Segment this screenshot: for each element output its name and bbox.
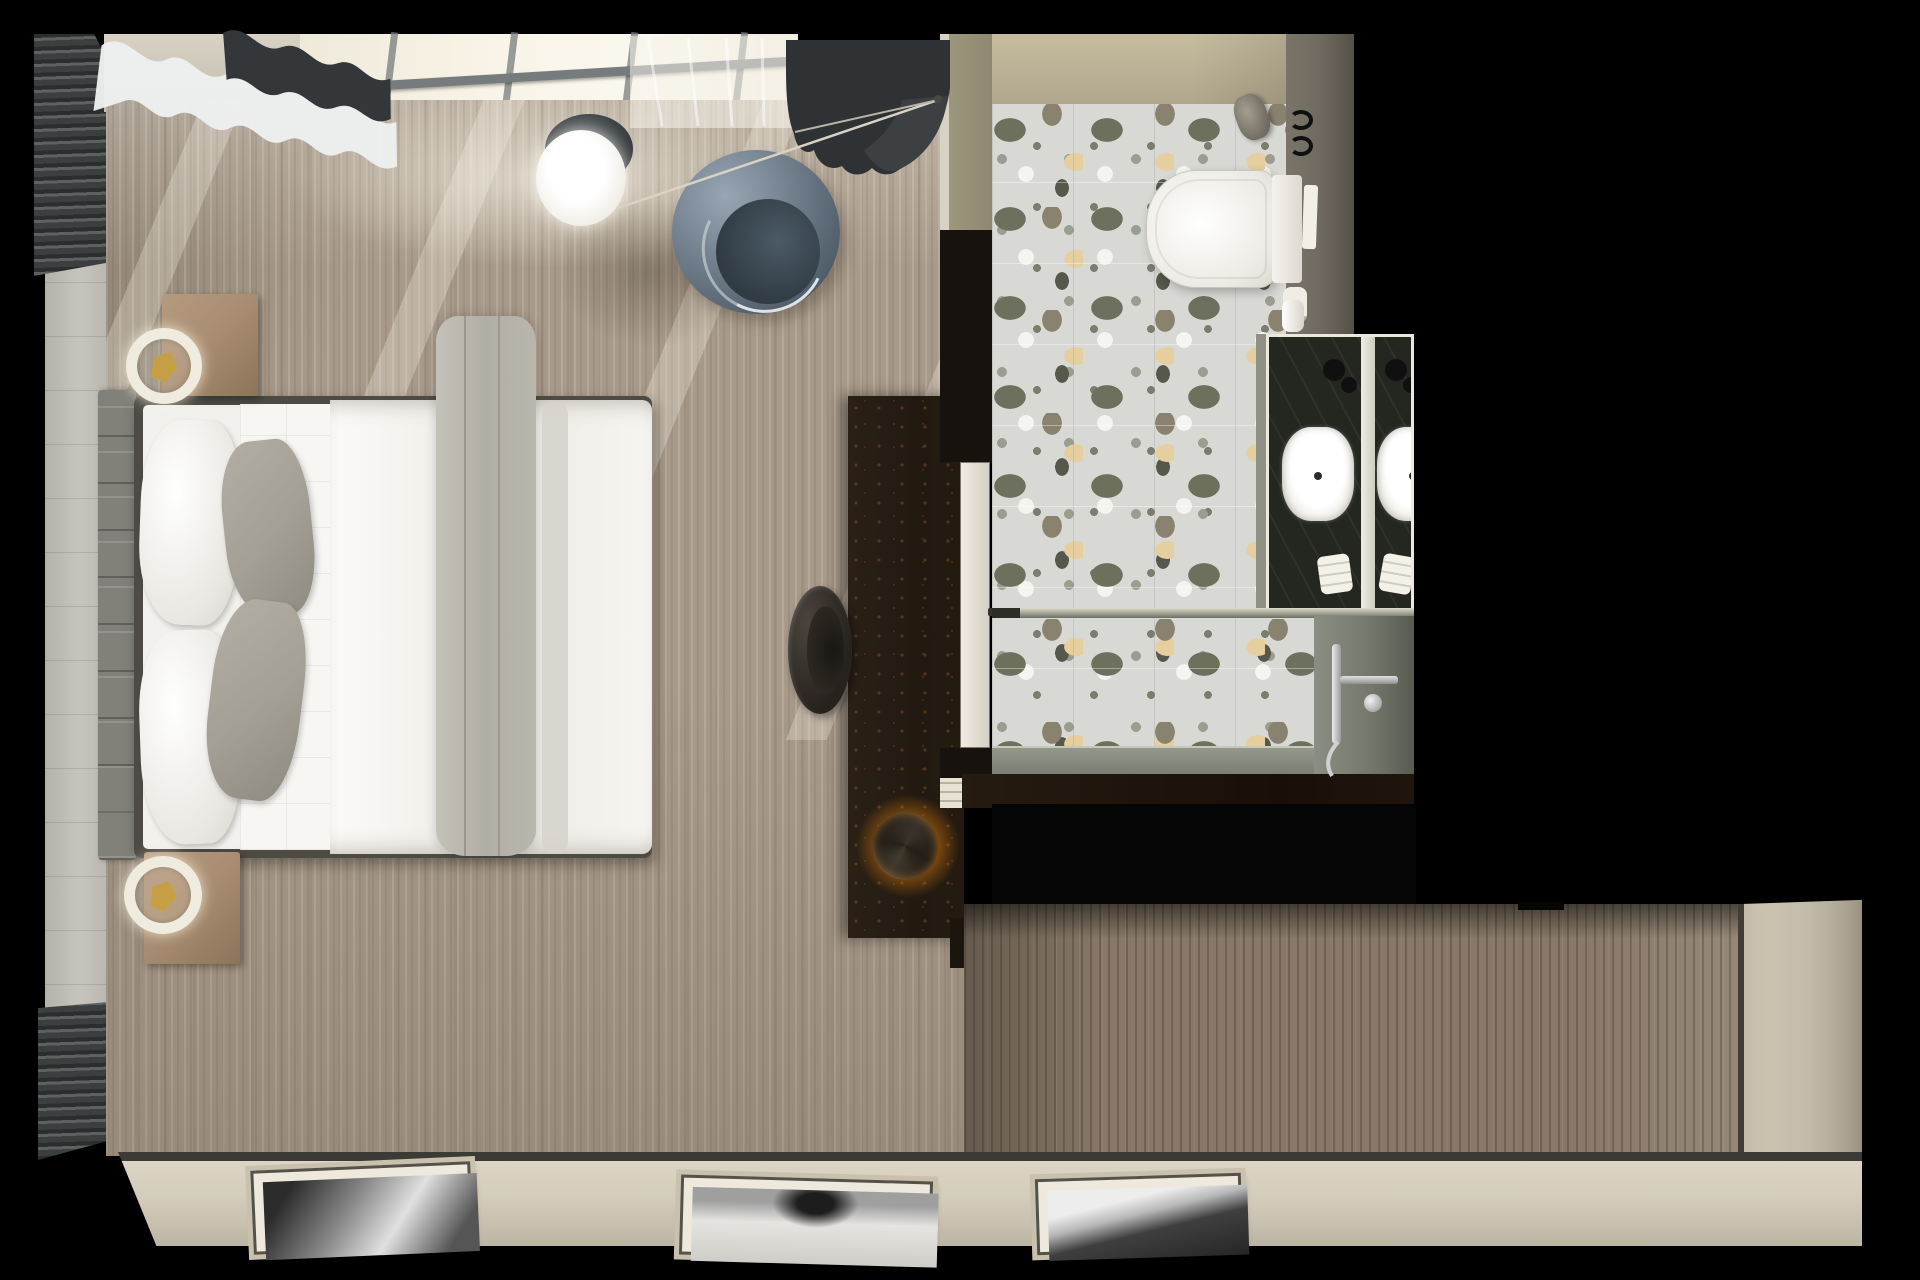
rolled-towel — [1317, 553, 1354, 595]
ring-lamp — [126, 328, 202, 404]
framed-artwork — [679, 1174, 933, 1261]
flush-plate — [1302, 185, 1318, 249]
toilet-cistern — [1272, 175, 1302, 283]
stool — [788, 586, 852, 714]
room-render — [0, 0, 1920, 1280]
hallway-floor — [964, 904, 1740, 1156]
rolled-towel — [1378, 553, 1414, 596]
toilet — [1146, 170, 1276, 288]
sink — [1377, 427, 1414, 521]
faucet — [1323, 359, 1345, 381]
shower-riser-bar — [1332, 644, 1341, 744]
vanity-divider — [1361, 337, 1375, 616]
faucet — [1403, 377, 1414, 393]
shower-arm — [1340, 676, 1398, 684]
faucet — [1341, 377, 1357, 393]
framed-artwork — [1035, 1173, 1243, 1255]
lounge-chair — [672, 150, 840, 314]
wall-shadow-section — [940, 230, 992, 462]
console-lamp — [872, 812, 938, 880]
artwork-photo — [263, 1173, 480, 1260]
partition-wall — [940, 34, 992, 778]
drain — [1409, 472, 1414, 480]
bathroom-door — [960, 462, 990, 748]
drain — [1314, 472, 1322, 480]
bed-headboard — [98, 390, 136, 860]
sink — [1282, 427, 1354, 521]
shower-floor — [992, 746, 1314, 776]
framed-artwork — [250, 1161, 473, 1255]
brass-ornament — [146, 347, 182, 385]
floor-notch — [1518, 902, 1564, 910]
artwork-photo — [1047, 1185, 1249, 1261]
artwork-photo — [691, 1187, 939, 1268]
shadow-band — [962, 774, 1414, 808]
wardrobe-recess — [992, 804, 1416, 908]
vanity-edge — [1256, 334, 1266, 616]
towel-hook — [1289, 110, 1313, 130]
shower-valve — [1364, 694, 1382, 712]
brass-ornament — [145, 876, 181, 914]
towel-roll — [1282, 300, 1304, 332]
bed-throw-blanket — [436, 316, 536, 856]
pendant-lamp — [536, 130, 626, 226]
towel-hook — [1289, 136, 1313, 156]
ring-lamp — [124, 856, 202, 934]
faucet — [1385, 359, 1407, 381]
wall-olive-section — [940, 34, 992, 230]
blanket-fold — [542, 402, 568, 854]
shower-wall — [1314, 616, 1414, 778]
vanity — [1266, 334, 1414, 616]
